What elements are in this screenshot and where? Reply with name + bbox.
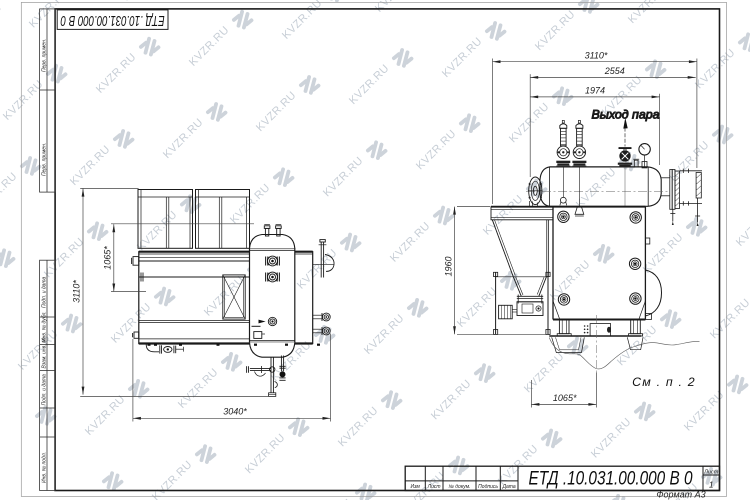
svg-text:Подп. и дата: Подп. и дата [42,374,48,406]
svg-text:Подп. и дата: Подп. и дата [42,276,48,308]
svg-text:3040*: 3040* [223,407,247,417]
svg-text:ЕТД .10.031.00.000 В 0: ЕТД .10.031.00.000 В 0 [61,12,165,28]
svg-text:2554: 2554 [604,66,625,76]
svg-text:1974: 1974 [585,86,605,96]
svg-text:Лист: Лист [427,484,441,490]
svg-text:Изм: Изм [411,484,421,490]
svg-text:Дата: Дата [501,484,515,490]
svg-text:3110*: 3110* [585,51,608,61]
svg-text:Выход пара: Выход пара [591,108,659,122]
svg-text:№ докум.: № докум. [448,484,470,490]
svg-text:Инв. № дубл.: Инв. № дубл. [42,311,48,342]
svg-text:1960: 1960 [444,256,454,276]
svg-text:Перв. примен.: Перв. примен. [42,39,48,72]
svg-text:1065*: 1065* [553,393,577,403]
svg-text:Взам. инв. №: Взам. инв. № [42,337,48,369]
svg-text:Формат А3: Формат А3 [656,490,705,500]
svg-text:3110*: 3110* [72,280,82,303]
svg-text:1: 1 [709,481,713,490]
svg-text:1065*: 1065* [102,246,112,270]
svg-text:Инв. № подл.: Инв. № подл. [42,452,48,483]
svg-text:См . п . 2: См . п . 2 [632,375,696,389]
svg-text:Перв. примен.: Перв. примен. [42,143,48,176]
svg-text:ЕТД .10.031.00.000 В 0: ЕТД .10.031.00.000 В 0 [529,469,693,490]
svg-text:Лист: Лист [703,469,719,475]
svg-text:Подпись: Подпись [478,484,498,490]
